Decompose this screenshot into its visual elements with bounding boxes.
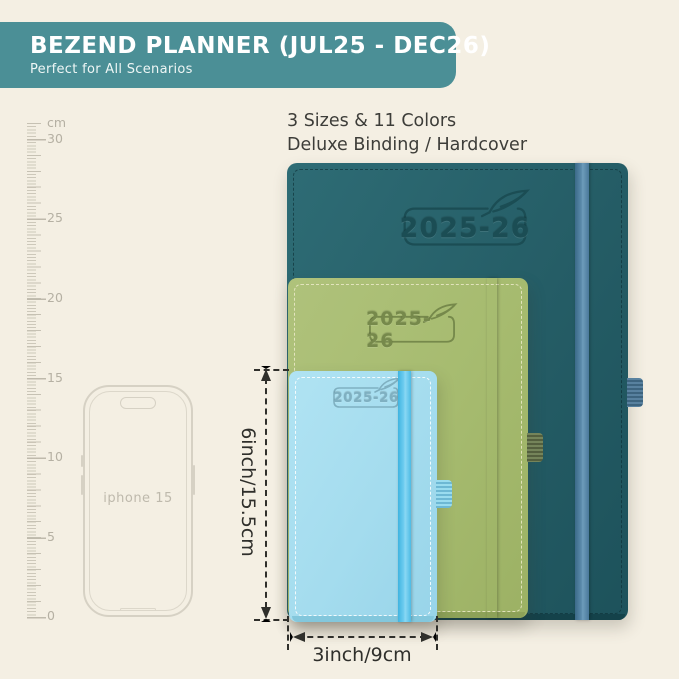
year-emboss: 2025-26 (399, 207, 531, 249)
page-edge (292, 616, 434, 622)
width-dimension-line (297, 636, 426, 638)
height-dimension-connector-bottom (254, 619, 289, 621)
ruler-label-10: 10 (47, 450, 63, 464)
headline: 3 Sizes & 11 Colors Deluxe Binding / Har… (287, 109, 527, 157)
pen-loop (436, 480, 452, 508)
iphone-volume-button (81, 455, 83, 467)
banner-title: BEZEND PLANNER (JUL25 - DEC26) (30, 33, 456, 59)
ruler-label-0: 0 (47, 609, 55, 623)
height-dimension-connector-top (254, 369, 289, 371)
iphone-label: iphone 15 (85, 491, 191, 506)
arrow-right-icon (421, 632, 436, 642)
ruler-label-25: 25 (47, 211, 63, 225)
planner-small: 2025-26 (289, 371, 437, 622)
pen-loop (627, 378, 643, 407)
ruler-label-30: 30 (47, 132, 63, 146)
product-image: BEZEND PLANNER (JUL25 - DEC26) Perfect f… (0, 0, 679, 679)
iphone-volume-button (81, 475, 83, 495)
pen-loop (527, 433, 543, 462)
cover-stamp: 2025-26 (331, 378, 401, 409)
ruler-label-15: 15 (47, 371, 63, 385)
dynamic-island (120, 397, 156, 409)
headline-line2: Deluxe Binding / Hardcover (287, 133, 527, 157)
cover-stamp: 2025-26 (399, 189, 531, 249)
banner: BEZEND PLANNER (JUL25 - DEC26) Perfect f… (0, 22, 456, 88)
iphone-outline: iphone 15 (83, 385, 193, 617)
arrow-left-icon (290, 632, 305, 642)
width-dimension-label: 3inch/9cm (287, 644, 437, 666)
height-dimension-line (265, 378, 267, 608)
headline-line1: 3 Sizes & 11 Colors (287, 109, 527, 133)
year-emboss: 2025-26 (331, 387, 401, 409)
ruler-unit-label: cm (47, 116, 66, 130)
ruler-label-20: 20 (47, 291, 63, 305)
iphone-side-button (193, 465, 195, 495)
elastic-band (398, 371, 411, 622)
arrow-up-icon (261, 366, 271, 381)
elastic-band (487, 278, 497, 618)
elastic-band (575, 163, 589, 620)
ruler-label-5: 5 (47, 530, 55, 544)
banner-subtitle: Perfect for All Scenarios (30, 62, 456, 77)
height-dimension-label: 6inch/15.5cm (237, 427, 259, 557)
cover-stamp: 2025-26 (366, 303, 458, 345)
year-emboss: 2025-26 (366, 316, 458, 345)
ruler-5cm-ticks (27, 139, 46, 619)
arrow-down-icon (261, 607, 271, 622)
iphone-port (120, 608, 156, 611)
